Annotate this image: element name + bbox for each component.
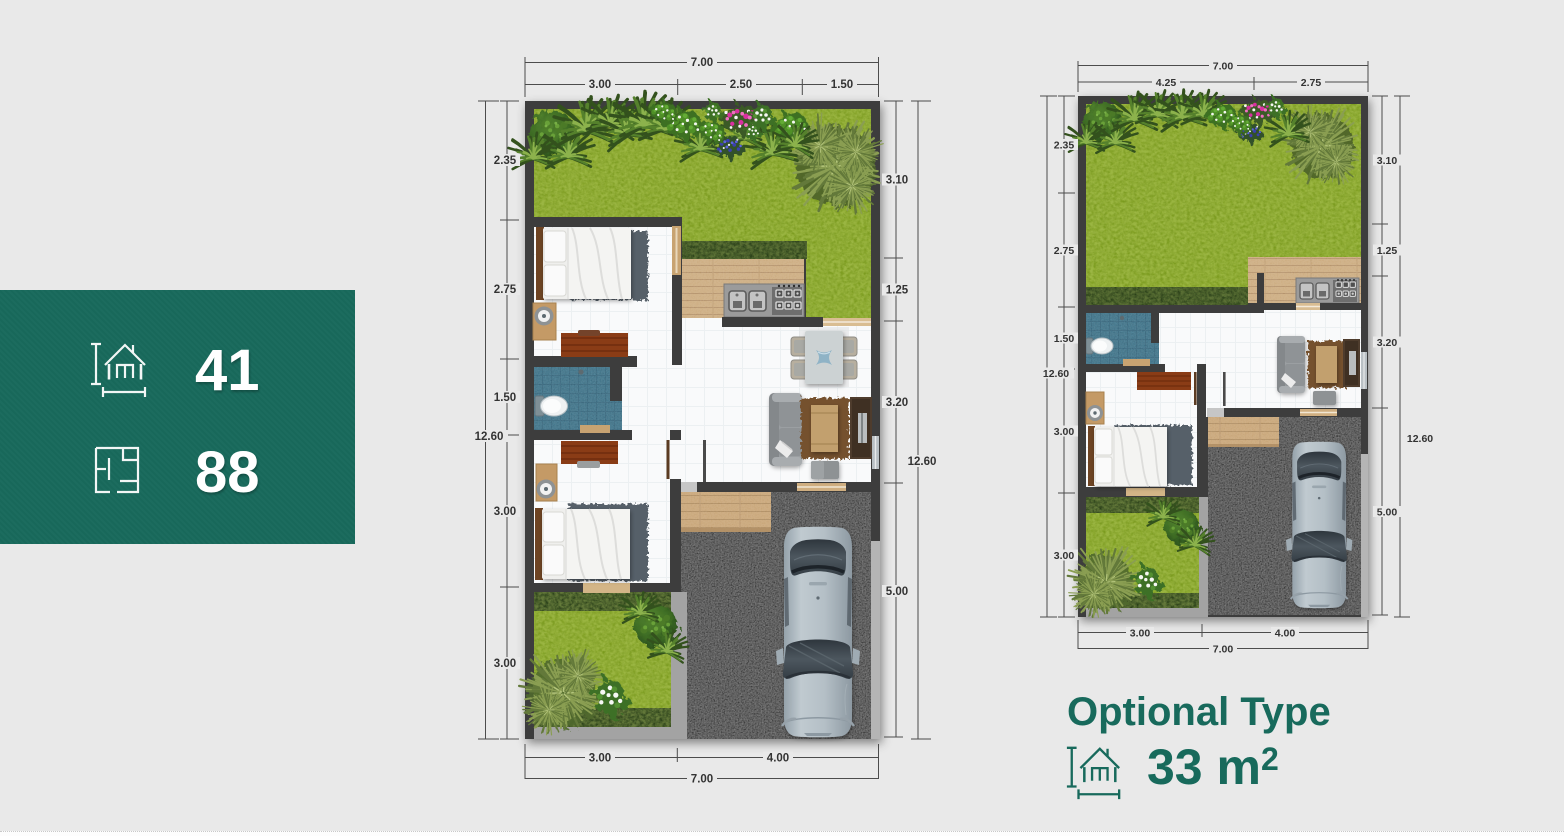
svg-text:1.25: 1.25 bbox=[886, 285, 909, 297]
svg-text:7.00: 7.00 bbox=[1213, 643, 1234, 655]
svg-text:3.00: 3.00 bbox=[494, 506, 516, 518]
svg-text:1.50: 1.50 bbox=[1054, 333, 1075, 345]
svg-text:3.20: 3.20 bbox=[1377, 337, 1398, 349]
svg-text:2.75: 2.75 bbox=[494, 284, 517, 296]
svg-text:4.00: 4.00 bbox=[1275, 627, 1296, 639]
svg-text:2.75: 2.75 bbox=[1054, 245, 1075, 257]
svg-text:3.00: 3.00 bbox=[1054, 426, 1075, 438]
svg-text:3.00: 3.00 bbox=[1130, 627, 1151, 639]
svg-text:3.00: 3.00 bbox=[589, 753, 611, 765]
svg-text:4.00: 4.00 bbox=[767, 753, 789, 765]
svg-text:7.00: 7.00 bbox=[691, 774, 713, 786]
svg-text:5.00: 5.00 bbox=[1377, 506, 1398, 518]
svg-text:2.75: 2.75 bbox=[1301, 77, 1322, 89]
svg-text:5.00: 5.00 bbox=[886, 586, 908, 598]
svg-text:1.50: 1.50 bbox=[831, 79, 853, 91]
svg-text:2.35: 2.35 bbox=[494, 155, 517, 167]
svg-text:2.35: 2.35 bbox=[1054, 139, 1075, 151]
svg-text:3.20: 3.20 bbox=[886, 397, 908, 409]
svg-text:1.50: 1.50 bbox=[494, 392, 516, 404]
svg-text:12.60: 12.60 bbox=[475, 431, 504, 443]
svg-text:1.25: 1.25 bbox=[1377, 245, 1398, 257]
svg-text:3.00: 3.00 bbox=[1054, 550, 1075, 562]
svg-text:7.00: 7.00 bbox=[691, 57, 713, 69]
svg-text:12.60: 12.60 bbox=[908, 456, 937, 468]
svg-text:2.50: 2.50 bbox=[730, 79, 752, 91]
svg-text:12.60: 12.60 bbox=[1407, 433, 1433, 445]
svg-text:3.00: 3.00 bbox=[494, 658, 516, 670]
svg-text:3.10: 3.10 bbox=[886, 175, 908, 187]
svg-text:4.25: 4.25 bbox=[1156, 77, 1177, 89]
svg-text:3.00: 3.00 bbox=[589, 79, 611, 91]
svg-text:7.00: 7.00 bbox=[1213, 60, 1234, 72]
svg-text:12.60: 12.60 bbox=[1043, 368, 1069, 380]
svg-text:3.10: 3.10 bbox=[1377, 155, 1398, 167]
